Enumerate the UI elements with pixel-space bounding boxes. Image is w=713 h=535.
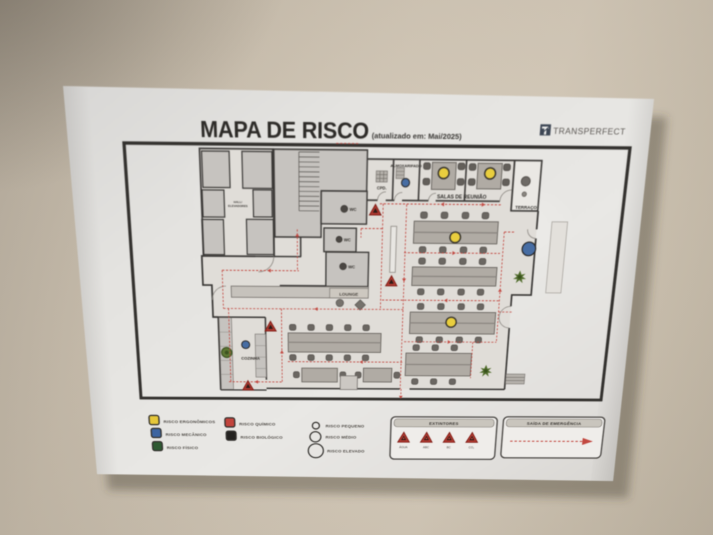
svg-text:RISCO BIOLÓGICO: RISCO BIOLÓGICO bbox=[240, 434, 282, 440]
svg-text:CO₂: CO₂ bbox=[468, 446, 474, 449]
svg-text:RISCO FÍSICO: RISCO FÍSICO bbox=[167, 444, 199, 450]
svg-text:ALMOXARIFADO: ALMOXARIFADO bbox=[390, 163, 422, 168]
svg-text:RISCO QUÍMICO: RISCO QUÍMICO bbox=[239, 421, 275, 427]
svg-text:RISCO MECÂNICO: RISCO MECÂNICO bbox=[165, 432, 206, 438]
svg-text:RISCO ERGONÔMICOS: RISCO ERGONÔMICOS bbox=[163, 418, 215, 424]
svg-text:CPD.: CPD. bbox=[377, 186, 387, 191]
svg-text:TERRAÇO: TERRAÇO bbox=[515, 205, 537, 211]
svg-text:EXTINTORES: EXTINTORES bbox=[429, 422, 459, 427]
svg-text:SAÍDA DE EMERGÊNCIA: SAÍDA DE EMERGÊNCIA bbox=[527, 420, 582, 426]
svg-text:RISCO ELEVADO: RISCO ELEVADO bbox=[327, 449, 364, 454]
svg-text:WC: WC bbox=[349, 207, 357, 212]
svg-text:COZINHA: COZINHA bbox=[241, 356, 260, 361]
svg-text:WC: WC bbox=[348, 265, 355, 269]
svg-text:LOUNGE: LOUNGE bbox=[339, 292, 359, 297]
svg-text:RISCO PEQUENO: RISCO PEQUENO bbox=[326, 424, 365, 429]
svg-text:MAPA DE RISCO: MAPA DE RISCO bbox=[200, 117, 370, 144]
svg-text:SALAS DE REUNIÃO: SALAS DE REUNIÃO bbox=[437, 194, 487, 201]
svg-text:ÁGUA: ÁGUA bbox=[399, 446, 408, 449]
svg-text:TRANSPERFECT: TRANSPERFECT bbox=[553, 126, 626, 136]
svg-text:ABC: ABC bbox=[423, 446, 430, 449]
svg-text:WC: WC bbox=[344, 238, 352, 243]
svg-text:ELEVADORES: ELEVADORES bbox=[228, 204, 248, 208]
svg-text:(atualizado em: Mai/2025): (atualizado em: Mai/2025) bbox=[372, 131, 463, 141]
svg-text:RISCO MÉDIO: RISCO MÉDIO bbox=[326, 434, 357, 440]
svg-text:BC: BC bbox=[447, 446, 452, 449]
